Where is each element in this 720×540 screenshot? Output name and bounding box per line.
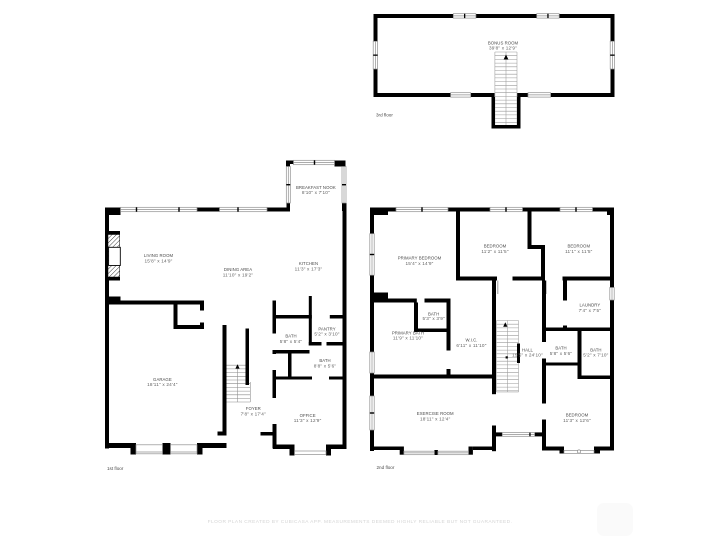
- svg-text:11'1" x 11'5": 11'1" x 11'5": [565, 249, 593, 254]
- svg-text:18'11" x 12'4": 18'11" x 12'4": [420, 416, 451, 421]
- svg-text:8'8" x 5'6": 8'8" x 5'6": [314, 363, 337, 368]
- svg-text:BEDROOM: BEDROOM: [566, 412, 589, 417]
- svg-text:15'4" x 14'9": 15'4" x 14'9": [405, 261, 433, 266]
- svg-text:39'8" x 12'9": 39'8" x 12'9": [489, 46, 517, 51]
- svg-text:KITCHEN: KITCHEN: [299, 261, 318, 266]
- svg-text:7'4" x 7'5": 7'4" x 7'5": [579, 308, 602, 313]
- svg-text:EXERCISE ROOM: EXERCISE ROOM: [417, 411, 454, 416]
- svg-text:DINING AREA: DINING AREA: [224, 267, 252, 272]
- svg-text:PRIMARY BEDROOM: PRIMARY BEDROOM: [398, 255, 442, 260]
- svg-text:11'2" x 11'5": 11'2" x 11'5": [481, 249, 509, 254]
- svg-text:1st floor: 1st floor: [107, 466, 124, 471]
- svg-text:2nd floor: 2nd floor: [377, 465, 395, 470]
- svg-text:11'9" x 11'10": 11'9" x 11'10": [393, 336, 423, 341]
- svg-text:3rd floor: 3rd floor: [376, 113, 393, 118]
- svg-text:11'3" x 17'3": 11'3" x 17'3": [295, 267, 323, 272]
- svg-text:5'8" x 5'4": 5'8" x 5'4": [280, 339, 303, 344]
- svg-text:8'10" x 7'10": 8'10" x 7'10": [302, 190, 330, 195]
- svg-text:15'5" x 24'10": 15'5" x 24'10": [512, 353, 543, 358]
- svg-text:11'3" x 12'6": 11'3" x 12'6": [563, 418, 591, 423]
- svg-text:11'3" x 12'9": 11'3" x 12'9": [294, 418, 322, 423]
- svg-text:11'10" x 19'2": 11'10" x 19'2": [223, 273, 254, 278]
- svg-text:18'11" x 24'4": 18'11" x 24'4": [147, 382, 178, 387]
- svg-text:5'3" x 3'9": 5'3" x 3'9": [422, 316, 445, 321]
- svg-text:15'8" x 14'9": 15'8" x 14'9": [144, 258, 172, 263]
- svg-text:FLOOR PLAN CREATED BY CUBICASA: FLOOR PLAN CREATED BY CUBICASA APP. MEAS…: [208, 519, 513, 525]
- svg-text:7'8" x 17'4": 7'8" x 17'4": [241, 411, 266, 416]
- svg-text:5'8" x 5'6": 5'8" x 5'6": [550, 351, 573, 356]
- svg-text:6'11" x 11'10": 6'11" x 11'10": [456, 343, 486, 348]
- svg-text:5'2" x 7'10": 5'2" x 7'10": [583, 353, 608, 358]
- svg-text:BATH: BATH: [285, 334, 296, 339]
- svg-text:5'2" x 3'10": 5'2" x 3'10": [314, 332, 339, 337]
- svg-text:FOYER: FOYER: [246, 406, 261, 411]
